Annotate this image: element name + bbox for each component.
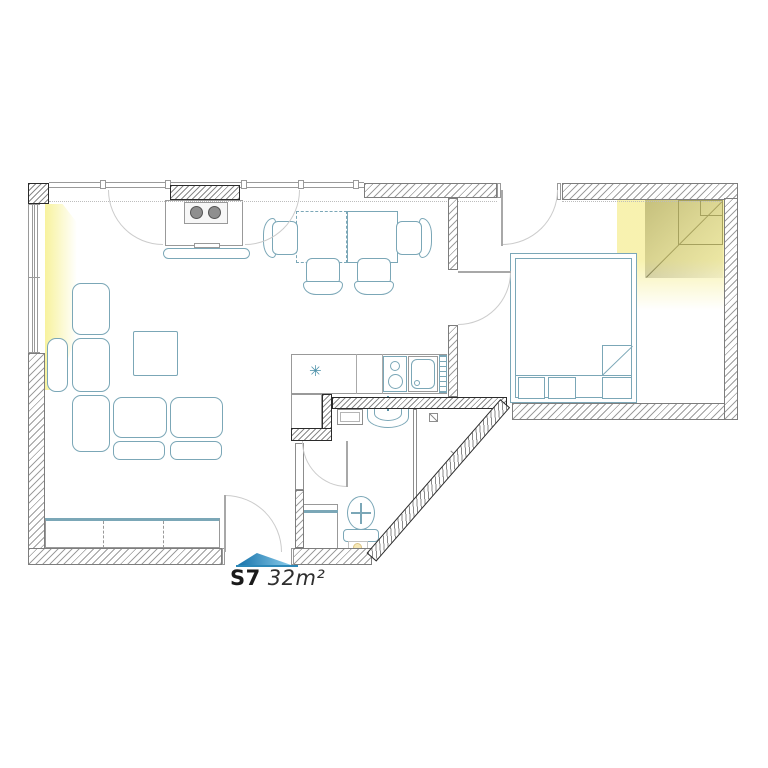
wall-inner-dotted-line bbox=[562, 201, 722, 202]
left-window-glazing bbox=[34, 204, 38, 353]
sofa-backrest bbox=[113, 441, 165, 460]
window-bracket bbox=[241, 180, 247, 189]
radiator-inner bbox=[340, 412, 360, 422]
sink-drain bbox=[414, 380, 420, 386]
wall-bottom-stub bbox=[293, 548, 372, 565]
chair-seat bbox=[396, 221, 422, 255]
stove-burner-icon bbox=[190, 206, 203, 219]
chair-back bbox=[354, 281, 394, 295]
hearth-plate bbox=[163, 248, 250, 259]
counter-divider bbox=[356, 354, 357, 394]
blanket-line bbox=[515, 375, 632, 376]
wall-bottom bbox=[28, 548, 222, 565]
sofa-seat bbox=[170, 397, 223, 438]
washing-machine-lid bbox=[301, 510, 338, 513]
unit-id-label: S7 bbox=[230, 566, 261, 590]
bedroom-balcony-door-swing bbox=[502, 190, 558, 245]
bedroom-door-leaf bbox=[458, 271, 511, 273]
blanket-fold-line bbox=[602, 345, 632, 346]
left-window-tick bbox=[28, 277, 40, 278]
unit-area-label: 32m² bbox=[268, 566, 326, 590]
chair-back bbox=[303, 281, 343, 295]
wall-top-right bbox=[562, 183, 738, 200]
bed-pillow bbox=[548, 377, 576, 399]
left-window-frame bbox=[28, 204, 33, 353]
window-bracket bbox=[298, 180, 304, 189]
wall-chimney-block bbox=[170, 185, 240, 200]
sofa-seat bbox=[113, 397, 167, 438]
window-bracket bbox=[100, 180, 106, 189]
sofa-armrest bbox=[47, 338, 68, 392]
wall-bath-partition-lower bbox=[295, 490, 304, 548]
bed-pillow bbox=[518, 377, 545, 399]
wall-bedroom-left-upper bbox=[448, 198, 458, 270]
sofa-module bbox=[72, 338, 110, 392]
toilet-drain-line bbox=[360, 503, 362, 524]
sideboard-divider bbox=[103, 521, 104, 548]
sofa-backrest bbox=[170, 441, 222, 460]
wall-top-mid bbox=[364, 183, 497, 198]
fridge-snowflake-icon: ✳ bbox=[309, 364, 322, 379]
wall-bedroom-left-lower bbox=[448, 325, 458, 397]
kitchen-tall-cabinet bbox=[291, 394, 322, 429]
coffee-table bbox=[133, 331, 178, 376]
dining-table bbox=[347, 211, 398, 263]
window-bracket bbox=[353, 180, 359, 189]
wall-right bbox=[724, 198, 738, 420]
wall-pillar-topleft bbox=[28, 183, 49, 204]
bathroom-door-swing bbox=[302, 441, 347, 487]
unit-label: S732m² bbox=[230, 566, 325, 590]
wall-bedroom-bottom bbox=[512, 403, 725, 420]
blanket-fold bbox=[602, 377, 632, 399]
sideboard-divider bbox=[163, 521, 164, 548]
cooktop-burner-large bbox=[388, 374, 403, 389]
floor-plan: ✳ bbox=[0, 0, 768, 768]
sideboard bbox=[45, 518, 220, 548]
balcony-door-swing bbox=[108, 190, 163, 245]
wall-kitchen-L-foot bbox=[291, 428, 332, 441]
bedroom-door-swing bbox=[458, 272, 511, 325]
dish-drainer bbox=[439, 355, 447, 393]
vent-icon bbox=[429, 413, 438, 422]
wall-kitchen-south bbox=[332, 397, 507, 409]
blanket-fold-line bbox=[602, 345, 603, 376]
left-window-tick bbox=[28, 204, 40, 205]
wall-bath-right bbox=[413, 409, 417, 505]
door-jamb bbox=[291, 548, 294, 565]
sofa-module bbox=[72, 395, 110, 452]
toilet-drain-line bbox=[351, 512, 371, 514]
sofa-module bbox=[72, 283, 110, 335]
dining-table-leaf bbox=[296, 211, 347, 263]
cooktop-burner-small bbox=[390, 361, 400, 371]
bathroom-door-leaf bbox=[346, 441, 348, 487]
entrance-door-leaf bbox=[224, 495, 226, 552]
entrance-door-swing bbox=[225, 495, 282, 552]
stove-burner-icon bbox=[208, 206, 221, 219]
wall-left bbox=[28, 353, 45, 565]
bedroom-balcony-door-leaf bbox=[501, 190, 503, 246]
